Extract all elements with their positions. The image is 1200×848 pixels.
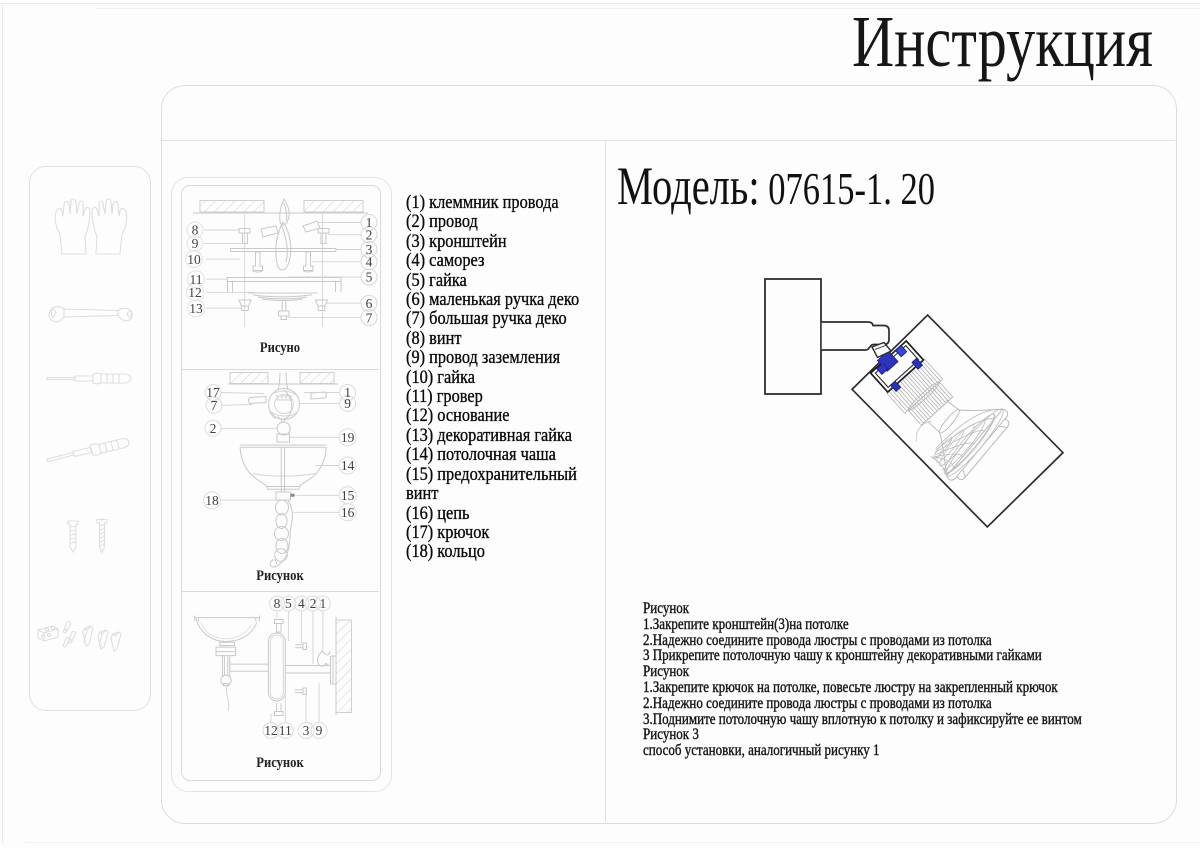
svg-text:4: 4 [366, 255, 373, 270]
svg-text:7: 7 [366, 310, 373, 325]
svg-text:10: 10 [187, 252, 201, 267]
svg-text:9: 9 [344, 396, 351, 411]
svg-text:7: 7 [211, 398, 218, 413]
svg-text:2: 2 [366, 227, 373, 242]
svg-text:4: 4 [298, 596, 305, 611]
svg-text:8: 8 [274, 596, 281, 611]
svg-text:6: 6 [366, 296, 373, 311]
svg-text:15: 15 [341, 488, 355, 503]
svg-text:13: 13 [189, 301, 203, 316]
svg-text:9: 9 [316, 723, 323, 738]
svg-text:5: 5 [366, 270, 373, 285]
svg-text:1: 1 [320, 596, 327, 611]
svg-text:2: 2 [210, 421, 217, 436]
svg-text:9: 9 [192, 236, 199, 251]
svg-text:16: 16 [341, 505, 355, 520]
svg-text:12: 12 [264, 723, 278, 738]
svg-text:11: 11 [279, 723, 292, 738]
svg-text:14: 14 [341, 458, 355, 473]
svg-text:12: 12 [188, 285, 202, 300]
svg-text:18: 18 [205, 493, 219, 508]
svg-text:5: 5 [285, 596, 292, 611]
svg-text:2: 2 [310, 596, 317, 611]
svg-text:19: 19 [341, 430, 355, 445]
svg-text:3: 3 [303, 723, 310, 738]
